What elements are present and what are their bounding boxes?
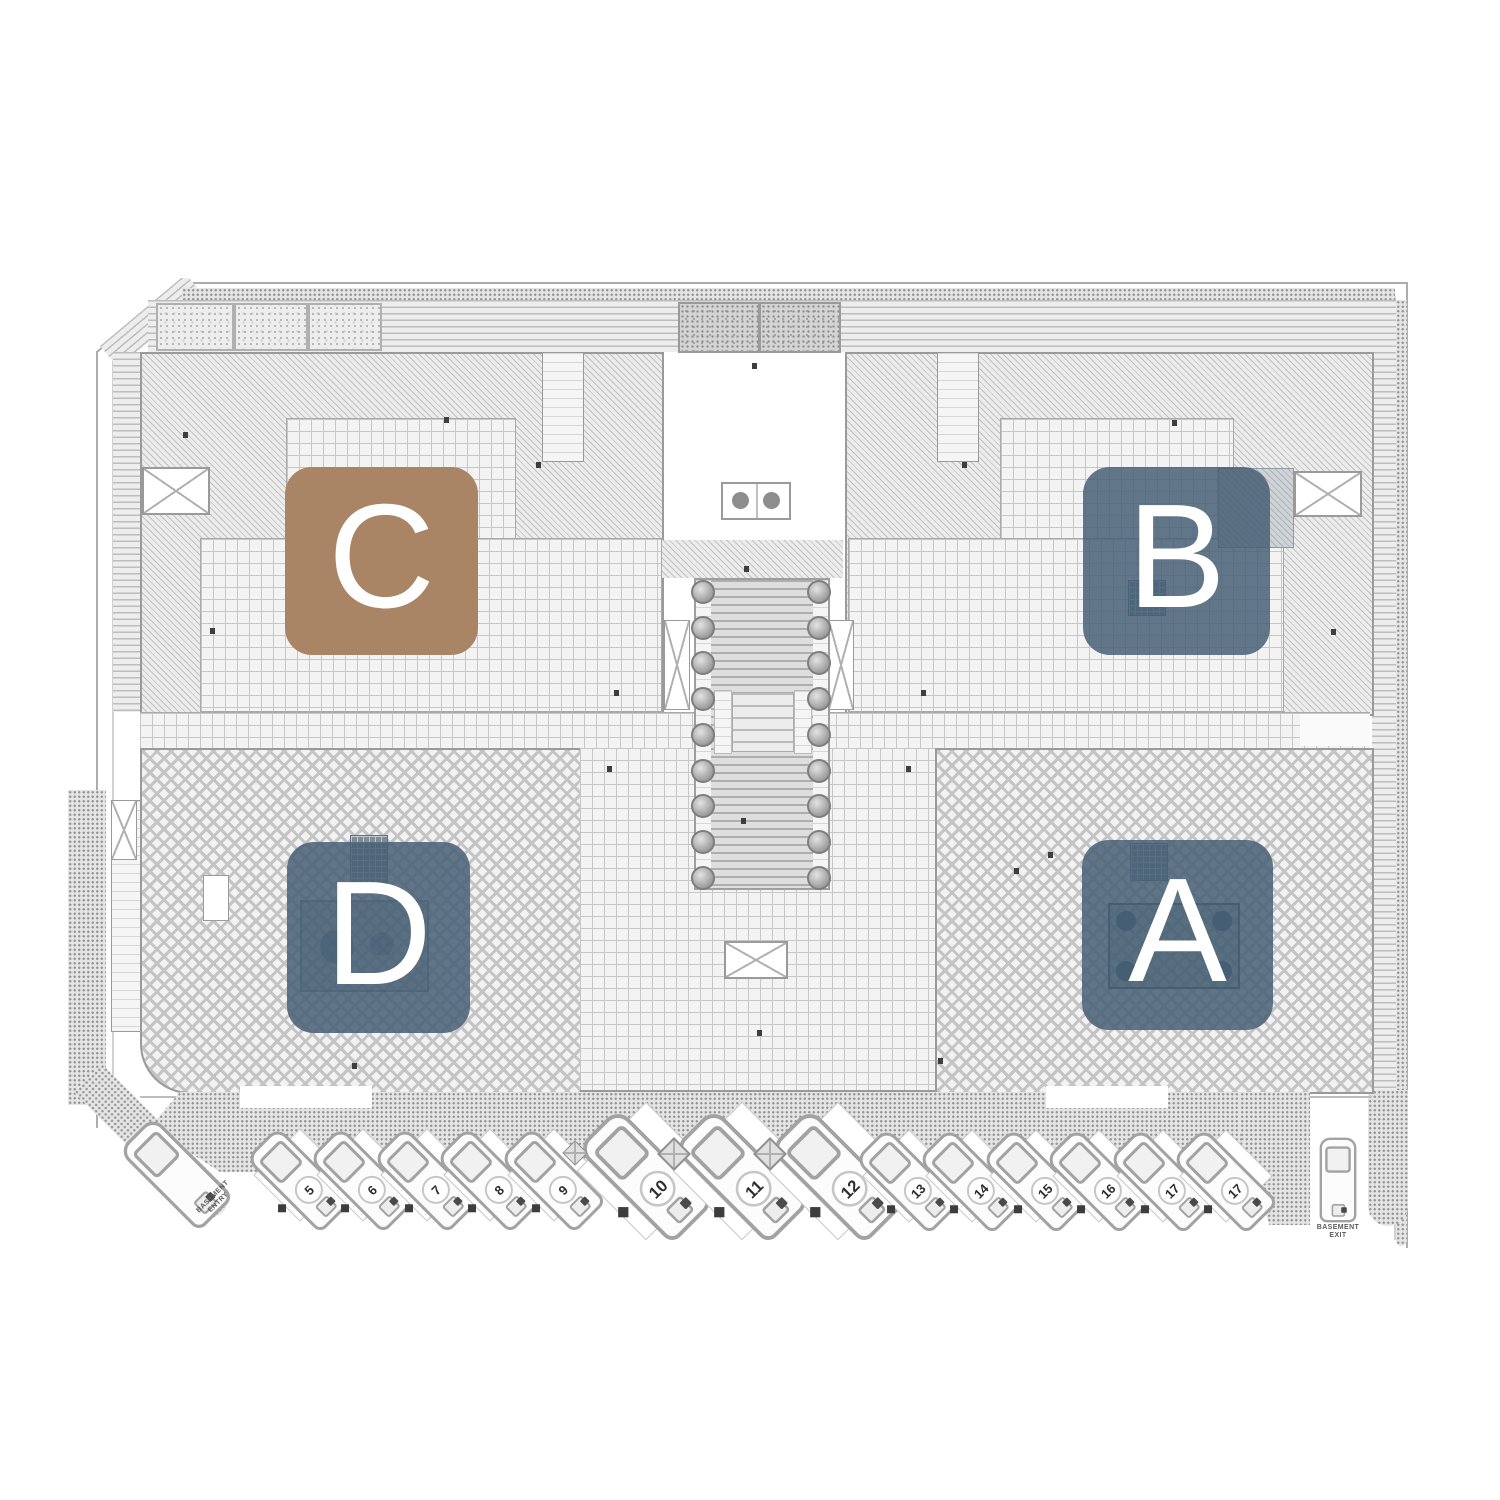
block-label-d: D bbox=[325, 860, 432, 1008]
road-left bbox=[68, 790, 106, 1105]
skylight-box bbox=[721, 482, 791, 520]
stair-bollard bbox=[691, 580, 715, 604]
stair-bollard bbox=[807, 687, 831, 711]
deck-band-right bbox=[1372, 300, 1396, 1090]
basement-exit-label: BASEMENT EXIT bbox=[1308, 1224, 1368, 1240]
stair-side-panel bbox=[828, 620, 854, 710]
stair-bollard bbox=[691, 687, 715, 711]
stair-bollard bbox=[807, 794, 831, 818]
dimension-tick bbox=[444, 417, 449, 423]
block-hotspot-b[interactable]: B bbox=[1083, 467, 1270, 655]
stair-bollard bbox=[807, 580, 831, 604]
roof-corridor-patch bbox=[662, 540, 843, 578]
stair-bollard bbox=[807, 616, 831, 640]
dimension-tick bbox=[906, 766, 911, 772]
block-hotspot-d[interactable]: D bbox=[287, 842, 470, 1033]
stair-bollard bbox=[691, 759, 715, 783]
dimension-tick bbox=[614, 690, 619, 696]
vent-box bbox=[1294, 471, 1362, 517]
stair-bollard bbox=[691, 794, 715, 818]
planter bbox=[678, 302, 760, 353]
deck-band-left bbox=[113, 352, 143, 712]
dimension-tick bbox=[757, 1030, 762, 1036]
dimension-tick bbox=[210, 628, 215, 634]
stair-landing bbox=[732, 692, 794, 752]
storefront-notch bbox=[1046, 1086, 1168, 1108]
stair-bollard bbox=[691, 723, 715, 747]
planter bbox=[234, 303, 308, 351]
block-label-a: A bbox=[1128, 857, 1227, 1005]
site-plan-canvas: 56789101112131415161717 BASEMENT ENTRY B… bbox=[0, 0, 1500, 1500]
ramp-top bbox=[111, 800, 137, 860]
stair-shaft bbox=[542, 352, 584, 462]
dimension-tick bbox=[741, 818, 746, 824]
storefront-notch bbox=[240, 1086, 372, 1108]
dimension-tick bbox=[1048, 852, 1053, 858]
block-hotspot-c[interactable]: C bbox=[285, 467, 478, 655]
driveway-right bbox=[1368, 1090, 1408, 1226]
dimension-tick bbox=[962, 462, 967, 468]
stair-bollard bbox=[691, 616, 715, 640]
stair-bollard bbox=[691, 830, 715, 854]
dimension-tick bbox=[1172, 420, 1177, 426]
vent-box bbox=[142, 467, 210, 515]
dimension-tick bbox=[1014, 868, 1019, 874]
sidewalk-strip-top bbox=[182, 288, 1395, 300]
dimension-tick bbox=[752, 363, 757, 369]
planter bbox=[308, 303, 382, 351]
stair-side-panel bbox=[664, 620, 690, 710]
walkway-gap bbox=[1300, 714, 1370, 746]
stair-bollard bbox=[807, 866, 831, 890]
block-hotspot-a[interactable]: A bbox=[1082, 840, 1273, 1030]
fountain-box bbox=[724, 941, 788, 979]
stair-shaft bbox=[937, 352, 979, 462]
stair-bollard bbox=[807, 759, 831, 783]
planter bbox=[156, 303, 234, 351]
block-label-b: B bbox=[1127, 483, 1226, 631]
dimension-tick bbox=[536, 462, 541, 468]
stair-bollard bbox=[807, 830, 831, 854]
block-label-c: C bbox=[328, 483, 435, 631]
dimension-tick bbox=[744, 566, 749, 572]
dimension-tick bbox=[352, 1063, 357, 1069]
dimension-tick bbox=[607, 766, 612, 772]
dimension-tick bbox=[1331, 629, 1336, 635]
planter bbox=[759, 302, 841, 353]
stair-bollard bbox=[691, 866, 715, 890]
dimension-tick bbox=[938, 1058, 943, 1064]
dimension-tick bbox=[183, 432, 188, 438]
terrace-box bbox=[203, 875, 229, 921]
stair-bollard bbox=[807, 723, 831, 747]
dimension-tick bbox=[921, 690, 926, 696]
